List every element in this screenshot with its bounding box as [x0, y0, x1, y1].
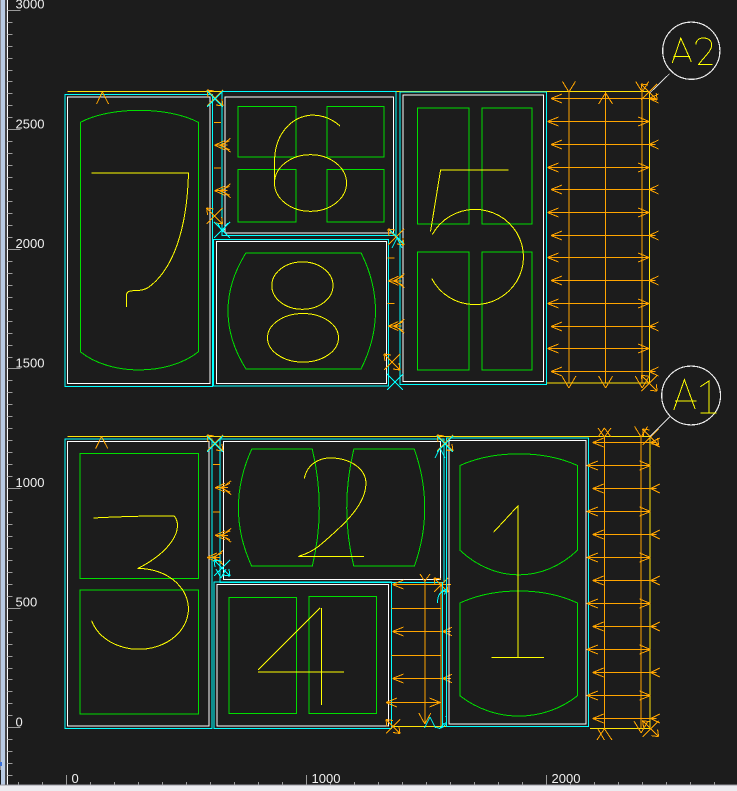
svg-text:0: 0: [16, 714, 23, 729]
svg-text:1000: 1000: [312, 771, 341, 786]
svg-text:2500: 2500: [16, 116, 45, 131]
svg-text:1500: 1500: [16, 356, 45, 371]
svg-text:500: 500: [16, 595, 38, 610]
svg-text:2000: 2000: [16, 236, 45, 251]
svg-text:2000: 2000: [552, 771, 581, 786]
svg-text:1000: 1000: [16, 475, 45, 490]
svg-text:3000: 3000: [16, 0, 45, 12]
svg-text:0: 0: [72, 771, 79, 786]
